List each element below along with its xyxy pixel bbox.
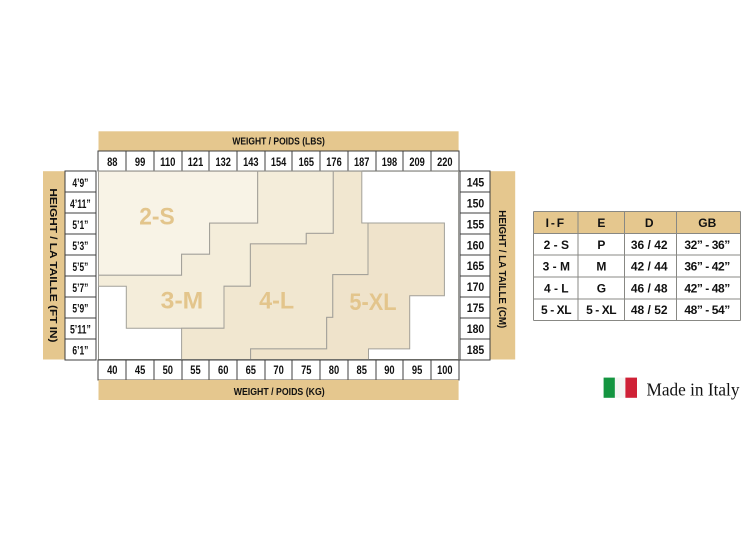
svg-text:5’1”: 5’1” xyxy=(72,218,88,232)
svg-text:55: 55 xyxy=(190,365,201,377)
svg-text:5’3”: 5’3” xyxy=(72,239,88,253)
svg-text:3-M: 3-M xyxy=(161,288,204,315)
svg-text:42 / 44: 42 / 44 xyxy=(631,260,668,274)
svg-text:5 - XL: 5 - XL xyxy=(541,303,572,317)
svg-text:4-L: 4-L xyxy=(259,288,294,315)
svg-text:95: 95 xyxy=(412,365,423,377)
svg-text:P: P xyxy=(597,238,605,252)
svg-text:85: 85 xyxy=(357,365,368,377)
svg-text:D: D xyxy=(645,216,654,230)
svg-text:5 - XL: 5 - XL xyxy=(586,303,617,317)
svg-text:5’9”: 5’9” xyxy=(72,302,88,316)
svg-text:176: 176 xyxy=(326,157,341,169)
svg-text:143: 143 xyxy=(243,157,258,169)
svg-text:Made in Italy: Made in Italy xyxy=(647,380,740,400)
svg-text:I - F: I - F xyxy=(546,216,565,230)
svg-text:150: 150 xyxy=(467,199,485,211)
svg-text:80: 80 xyxy=(329,365,339,377)
svg-text:88: 88 xyxy=(107,157,118,169)
svg-text:4’9”: 4’9” xyxy=(72,176,88,190)
svg-text:E: E xyxy=(597,216,605,230)
svg-text:145: 145 xyxy=(467,178,485,190)
svg-text:110: 110 xyxy=(160,157,175,169)
svg-text:198: 198 xyxy=(382,157,398,169)
svg-text:WEIGHT / POIDS (KG): WEIGHT / POIDS (KG) xyxy=(234,387,325,398)
svg-text:187: 187 xyxy=(354,157,369,169)
svg-text:45: 45 xyxy=(135,365,146,377)
svg-text:220: 220 xyxy=(437,157,452,169)
svg-text:36” - 42”: 36” - 42” xyxy=(684,260,730,274)
svg-text:170: 170 xyxy=(467,282,485,294)
svg-text:175: 175 xyxy=(467,303,485,315)
svg-text:160: 160 xyxy=(467,240,485,252)
svg-text:65: 65 xyxy=(246,365,257,377)
svg-text:121: 121 xyxy=(188,157,204,169)
svg-text:4 - L: 4 - L xyxy=(544,281,569,295)
svg-text:32” - 36”: 32” - 36” xyxy=(684,238,730,252)
svg-text:46 / 48: 46 / 48 xyxy=(631,281,668,295)
svg-text:3 - M: 3 - M xyxy=(543,260,570,274)
svg-text:154: 154 xyxy=(271,157,287,169)
svg-text:165: 165 xyxy=(299,157,315,169)
svg-text:4’11”: 4’11” xyxy=(70,197,91,211)
svg-text:90: 90 xyxy=(384,365,394,377)
svg-text:75: 75 xyxy=(301,365,312,377)
svg-text:180: 180 xyxy=(467,324,485,336)
svg-text:5’7”: 5’7” xyxy=(72,281,88,295)
svg-text:42” - 48”: 42” - 48” xyxy=(684,281,730,295)
svg-text:100: 100 xyxy=(437,365,452,377)
svg-text:GB: GB xyxy=(698,216,716,230)
svg-text:50: 50 xyxy=(163,365,173,377)
svg-text:60: 60 xyxy=(218,365,228,377)
svg-text:132: 132 xyxy=(216,157,231,169)
svg-text:HEIGHT / LA TAILLE (FT IN): HEIGHT / LA TAILLE (FT IN) xyxy=(47,188,59,342)
svg-text:WEIGHT / POIDS (LBS): WEIGHT / POIDS (LBS) xyxy=(232,137,325,148)
svg-text:5’11”: 5’11” xyxy=(70,323,91,337)
svg-text:155: 155 xyxy=(467,219,485,231)
svg-text:6’1”: 6’1” xyxy=(72,344,88,358)
svg-text:70: 70 xyxy=(273,365,283,377)
svg-text:5’5”: 5’5” xyxy=(73,260,89,274)
svg-text:165: 165 xyxy=(467,261,485,273)
svg-text:209: 209 xyxy=(409,157,424,169)
svg-text:48” - 54”: 48” - 54” xyxy=(684,303,730,317)
svg-text:M: M xyxy=(596,260,606,274)
svg-text:99: 99 xyxy=(135,157,145,169)
svg-text:36 / 42: 36 / 42 xyxy=(631,238,668,252)
svg-text:48 / 52: 48 / 52 xyxy=(631,303,668,317)
svg-text:185: 185 xyxy=(467,345,485,357)
svg-text:2-S: 2-S xyxy=(139,204,175,231)
svg-text:5-XL: 5-XL xyxy=(349,289,396,316)
svg-text:40: 40 xyxy=(107,365,117,377)
svg-text:G: G xyxy=(597,281,606,295)
svg-text:2 - S: 2 - S xyxy=(544,238,569,252)
svg-text:HEIGHT / LA TAILLE (CM): HEIGHT / LA TAILLE (CM) xyxy=(496,210,508,328)
